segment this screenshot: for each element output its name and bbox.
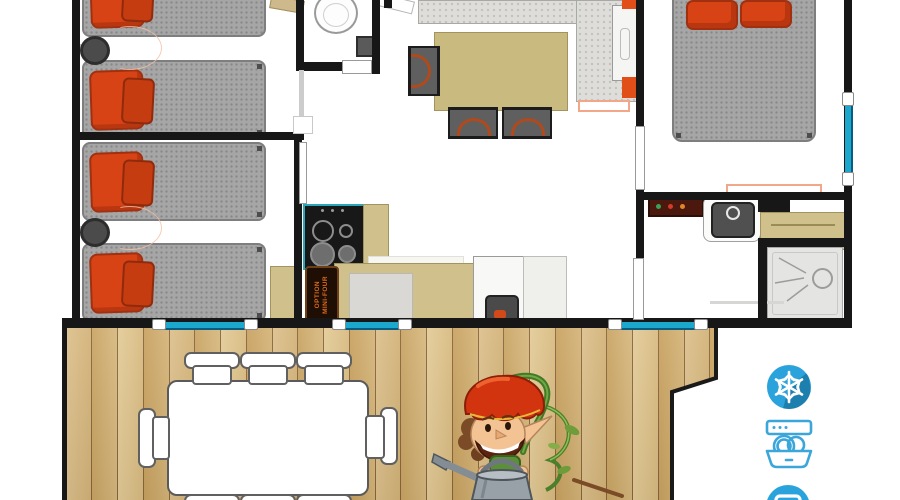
worktop-inset xyxy=(349,273,413,321)
fridge-handle xyxy=(620,28,630,60)
pillow xyxy=(740,0,792,28)
wall xyxy=(758,238,767,320)
wall xyxy=(72,132,304,140)
snowflake-icon xyxy=(764,362,814,412)
pillow xyxy=(121,77,155,125)
deck-table xyxy=(167,380,369,496)
window-hardware xyxy=(244,319,258,330)
stove-hob xyxy=(303,204,367,270)
mascot-gardener-elf xyxy=(426,372,626,500)
window-hardware xyxy=(842,92,854,106)
wall xyxy=(384,0,392,8)
option-mini-four-label: OPTION MINI-FOUR xyxy=(305,266,339,324)
single-bed-2 xyxy=(82,60,266,139)
window xyxy=(160,322,248,330)
single-bed-1 xyxy=(82,0,266,37)
window-hardware xyxy=(332,319,346,330)
radiator xyxy=(578,100,630,112)
window-hardware xyxy=(842,172,854,186)
bathroom-door xyxy=(633,258,644,320)
dining-table xyxy=(434,32,568,111)
dining-chair xyxy=(448,107,498,139)
single-bed-4 xyxy=(82,243,266,322)
bedroom-door xyxy=(635,126,645,190)
door-marker xyxy=(293,116,313,134)
deck-chair xyxy=(304,365,344,385)
shower-screen xyxy=(710,301,784,304)
window-hardware xyxy=(398,319,412,330)
option-label-line1: OPTION xyxy=(315,281,322,308)
pillow xyxy=(121,0,155,23)
burner xyxy=(312,220,334,242)
deck-chair xyxy=(152,416,170,460)
kitchen-counter xyxy=(334,263,476,324)
deck-chair xyxy=(248,365,288,385)
tv-icon xyxy=(763,483,813,500)
window-hardware xyxy=(152,319,166,330)
option-label-line2: MINI-FOUR xyxy=(323,276,330,314)
kitchen-worktop xyxy=(418,0,578,24)
deck-chair xyxy=(365,415,385,459)
door-leaf xyxy=(375,0,415,14)
bedside-stool xyxy=(80,218,110,247)
wc-door xyxy=(342,60,372,74)
window xyxy=(616,322,698,330)
bedside-stool xyxy=(80,36,110,65)
wall xyxy=(640,192,852,200)
deck-chair xyxy=(184,494,240,500)
wall xyxy=(758,196,790,212)
toilet xyxy=(314,0,358,34)
wall xyxy=(636,0,644,126)
burner xyxy=(310,242,335,267)
pillow xyxy=(121,159,155,207)
wall xyxy=(296,0,304,70)
dining-chair xyxy=(502,107,552,139)
bedroom-door xyxy=(299,142,307,204)
washbasin-vanity xyxy=(703,196,761,242)
kitchen-cabinet xyxy=(523,256,567,324)
deck-chair xyxy=(296,494,352,500)
window xyxy=(845,104,853,172)
bathroom-shelf xyxy=(648,198,704,217)
window-hardware xyxy=(608,319,622,330)
kitchen-sink-unit xyxy=(473,256,525,324)
dining-chair xyxy=(408,46,440,96)
floorplan: OPTION MINI-FOUR xyxy=(0,0,900,500)
window xyxy=(340,322,402,330)
burner xyxy=(338,245,356,263)
wall xyxy=(758,238,844,247)
deck-chair xyxy=(192,365,232,385)
window-hardware xyxy=(694,319,708,330)
wood-stick xyxy=(574,480,622,496)
shower-spray-icon xyxy=(767,247,841,318)
deck-chair xyxy=(240,494,296,500)
dishwasher-icon xyxy=(762,418,816,470)
pillow xyxy=(121,260,155,308)
pillow xyxy=(686,0,738,30)
faucet xyxy=(726,206,740,220)
wall xyxy=(72,0,80,326)
burner xyxy=(339,224,353,238)
single-bed-3 xyxy=(82,142,266,221)
double-bed xyxy=(672,0,816,142)
